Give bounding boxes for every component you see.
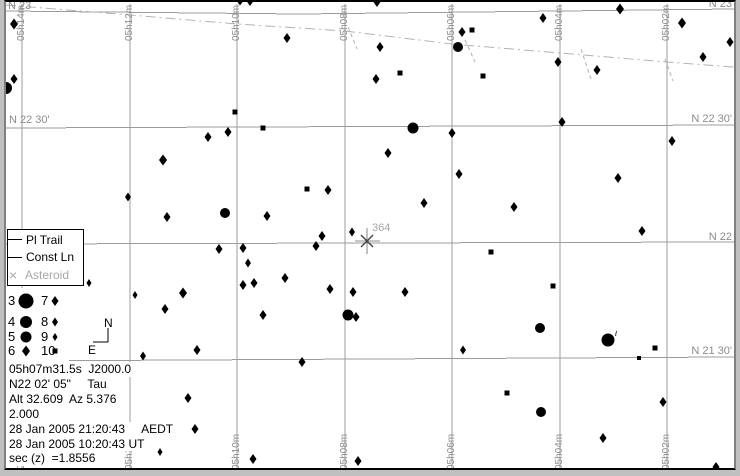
star [343, 310, 354, 321]
magnitude-legend-bg [6, 288, 69, 362]
dec-label-right: N 22 30' [691, 113, 732, 125]
asteroid-number-label: 364 [372, 222, 390, 234]
compass-north-label: N [104, 316, 113, 330]
star [240, 280, 247, 290]
star [481, 74, 486, 79]
star [535, 323, 545, 333]
star [727, 37, 734, 47]
star [377, 42, 384, 52]
legend-item-label: Asteroid [25, 268, 69, 282]
star-designation-label: ι [615, 328, 617, 338]
star [700, 52, 707, 62]
ra-label-top: 05h14m [16, 5, 27, 41]
ra-label-top: 05h04m [554, 5, 565, 41]
ecliptic-path [6, 5, 734, 67]
star [6, 82, 12, 94]
dec-constellation-line: N22 02' 05" Tau [9, 377, 110, 392]
star [615, 173, 622, 183]
star [713, 462, 720, 468]
star [192, 424, 199, 434]
airmass-line: sec (z) =1.8556 [9, 451, 98, 466]
magnitude-number: 9 [41, 329, 48, 344]
planet-trail-line-icon [8, 239, 22, 240]
star [540, 13, 547, 23]
star [349, 228, 355, 237]
asteroid-x-icon: × [9, 270, 22, 280]
star [194, 345, 201, 355]
star [282, 273, 289, 283]
star [247, 2, 254, 6]
star [216, 244, 223, 254]
star [653, 346, 658, 351]
dec-grid-line [6, 9, 734, 14]
ra-epoch-line: 05h07m31.5s J2000.0 [9, 362, 134, 377]
star [284, 33, 291, 43]
dec-grid-line [6, 125, 734, 128]
ra-label-top: 05h12m [124, 5, 135, 41]
star [299, 357, 306, 367]
compass-east-label: E [88, 343, 96, 357]
star [245, 259, 251, 268]
star [225, 127, 232, 137]
star [250, 454, 257, 464]
star [353, 312, 360, 322]
star [264, 211, 271, 221]
star [385, 148, 392, 158]
ecliptic-line [6, 5, 734, 81]
star [140, 352, 146, 361]
star [185, 393, 192, 403]
ra-label-bottom: 05h06m [446, 434, 457, 468]
star [233, 110, 238, 115]
magnitude-dot [21, 332, 32, 343]
magnitude-number: 6 [8, 343, 15, 358]
star [600, 433, 607, 443]
magnitude-number: 5 [8, 329, 15, 344]
magnitude-number: 7 [41, 293, 48, 308]
magnitude-dot [53, 349, 58, 354]
chart-window: N 23N 23N 22 30'N 22 30'N 22N 21 30'05h1… [4, 0, 736, 470]
star [669, 136, 676, 146]
star [260, 310, 267, 320]
magnitude-number: 4 [8, 314, 15, 329]
star [449, 128, 456, 138]
legend-item-pl-trail: Pl Trail [8, 232, 83, 248]
asteroid-marker[interactable]: 364 [355, 222, 390, 254]
star [421, 198, 428, 208]
ra-label-top: 05h08m [339, 5, 350, 41]
ra-label-bottom: 05h04m [554, 434, 565, 468]
dec-label-right: N 23 [709, 2, 732, 10]
star [373, 74, 380, 84]
dec-label-right: N 21 30' [691, 345, 732, 357]
ra-label-bottom: 05h10m [231, 434, 242, 468]
star [678, 18, 686, 29]
star [408, 123, 419, 134]
ecliptic-tick [465, 40, 475, 62]
legend-item-const-ln: Const Ln [8, 249, 83, 265]
star [374, 2, 381, 7]
star [133, 291, 138, 299]
legend-item-label: Const Ln [26, 250, 74, 264]
field-size-line: 2.000 [9, 407, 42, 422]
constellation-line-icon [8, 257, 22, 258]
star [639, 226, 646, 236]
star [11, 74, 18, 84]
star [602, 334, 615, 347]
star [355, 456, 362, 466]
magnitude-legend: 374859610 [6, 288, 69, 362]
star [164, 212, 171, 222]
compass-indicator: NE [88, 316, 113, 357]
star [179, 288, 187, 299]
star [220, 208, 230, 218]
star [616, 4, 624, 15]
star [327, 284, 334, 294]
star [162, 304, 169, 314]
local-time-line: 28 Jan 2005 21:20:43 AEDT [9, 422, 176, 437]
star [325, 185, 332, 195]
star [251, 278, 258, 288]
star [319, 231, 326, 241]
status-readout: 05h07m31.5s J2000.0 N22 02' 05" Tau Alt … [9, 362, 176, 466]
star [460, 346, 466, 355]
star [594, 65, 601, 75]
star [398, 71, 403, 76]
ut-time-line: 28 Jan 2005 10:20:43 UT [9, 437, 147, 452]
ra-label-top: 05h02m [661, 5, 672, 41]
star [660, 397, 667, 407]
magnitude-dot [19, 294, 34, 309]
star [453, 42, 463, 52]
star [456, 169, 463, 179]
star [536, 407, 546, 417]
star [313, 241, 320, 251]
ra-label-bottom: 05h02m [661, 434, 672, 468]
legend-item-asteroid: × Asteroid [8, 267, 83, 283]
star [87, 279, 92, 287]
star [205, 132, 212, 142]
ecliptic-tick [581, 49, 591, 79]
star [261, 126, 266, 131]
star [637, 356, 641, 360]
star [350, 287, 357, 297]
star [511, 202, 518, 212]
ra-label-top: 05h10m [231, 5, 242, 41]
star [159, 155, 167, 166]
dec-label-left: N 22 30' [9, 114, 50, 126]
symbol-legend: Pl Trail Const Ln × Asteroid [7, 229, 84, 286]
star [551, 284, 556, 289]
ra-label-top: 05h06m [446, 5, 457, 41]
star [305, 187, 310, 192]
star [459, 27, 466, 37]
magnitude-dot [20, 316, 32, 328]
ra-label-bottom: 05h08m [339, 434, 350, 468]
dec-label-right: N 22 [709, 231, 732, 243]
alt-az-line: Alt 32.609 Az 5.376 [9, 392, 119, 407]
star [470, 28, 475, 33]
star [489, 250, 494, 255]
star [505, 391, 510, 396]
star [240, 243, 247, 253]
star [402, 287, 409, 297]
magnitude-number: 8 [41, 314, 48, 329]
dec-grid-line [6, 357, 734, 361]
legend-item-label: Pl Trail [26, 233, 63, 247]
magnitude-number: 3 [8, 293, 15, 308]
